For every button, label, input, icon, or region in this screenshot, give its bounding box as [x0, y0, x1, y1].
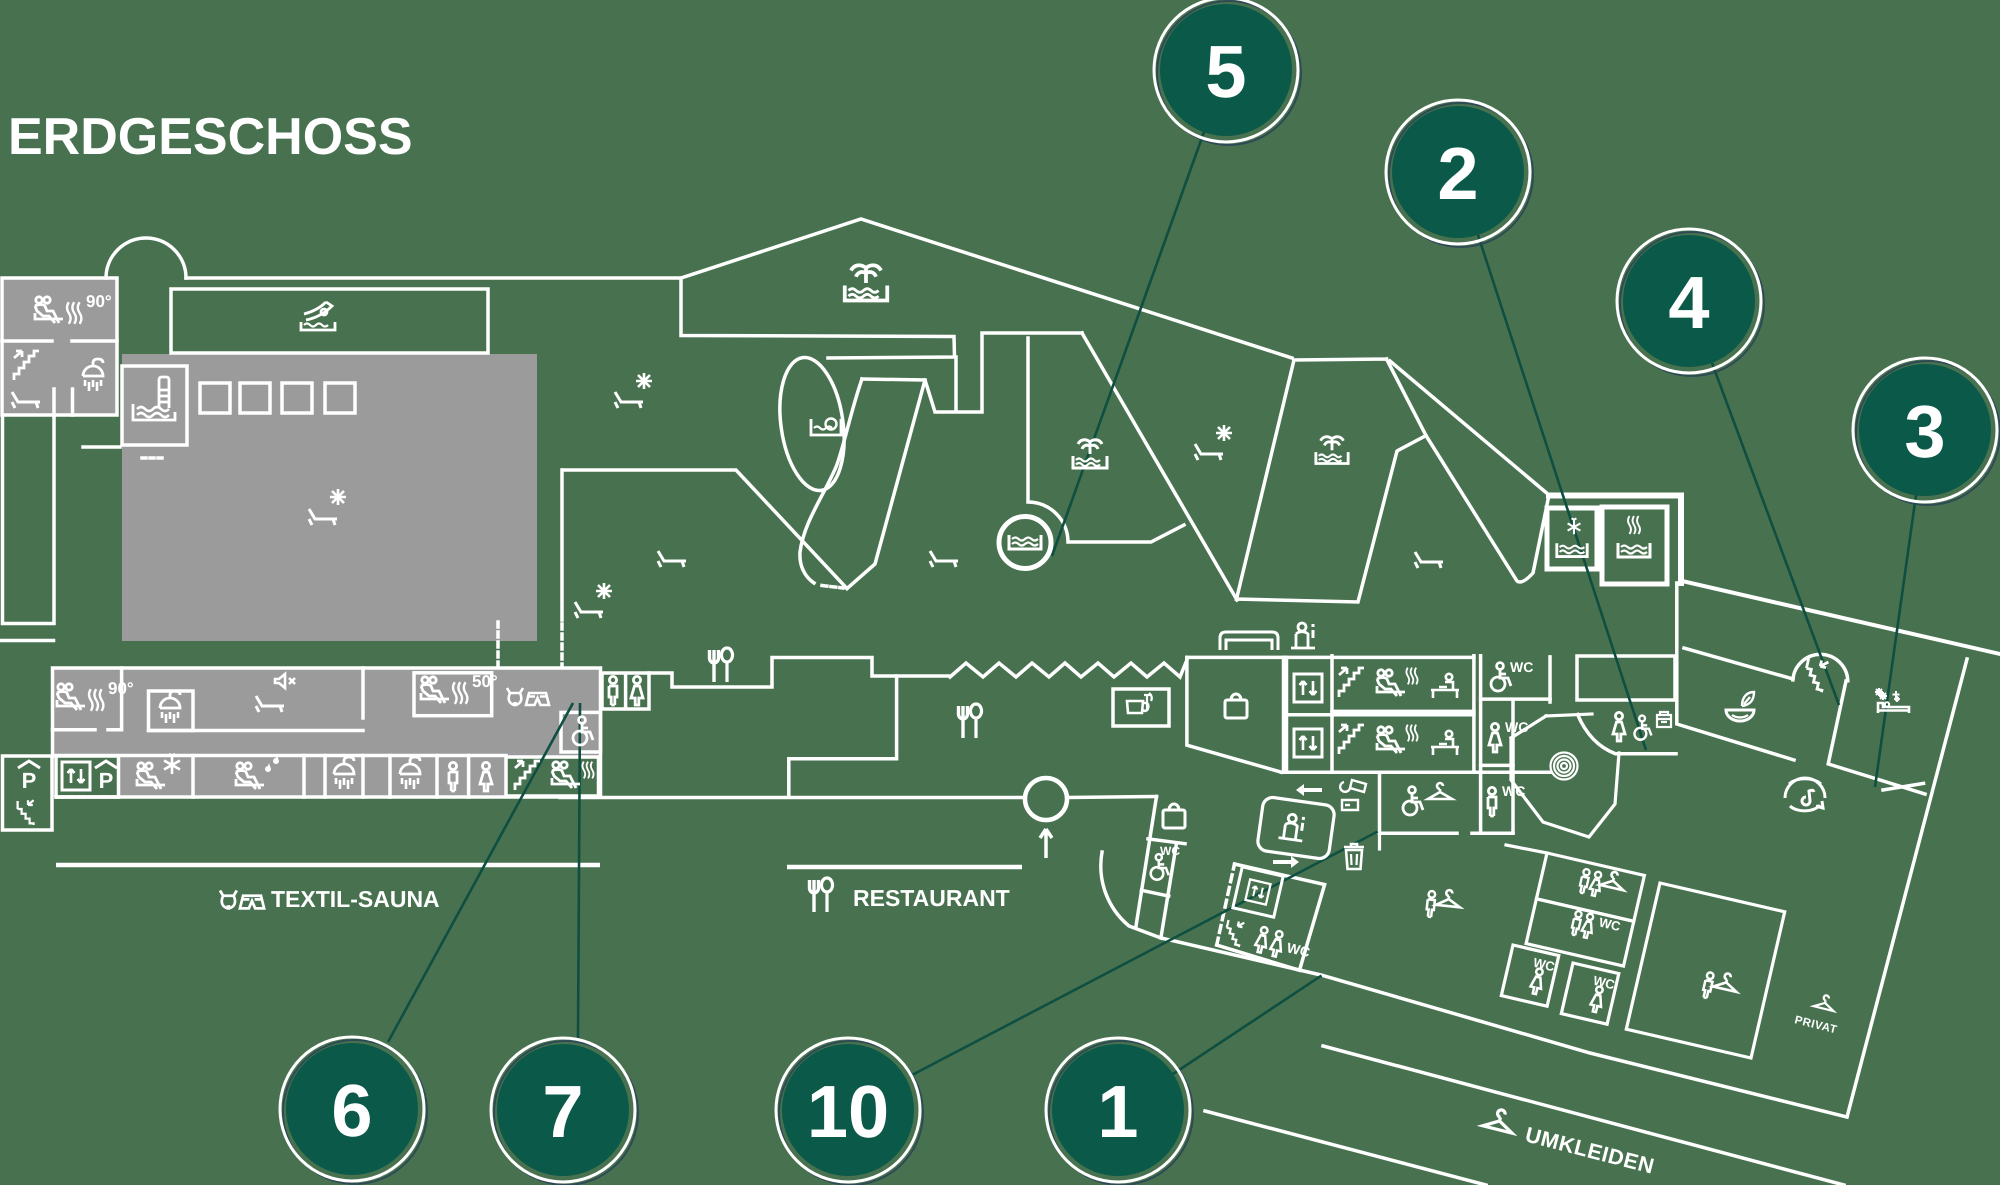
svg-text:WC: WC [1502, 783, 1525, 799]
svg-text:WC: WC [1510, 659, 1533, 675]
svg-text:1: 1 [1097, 1070, 1138, 1153]
svg-text:WC: WC [1160, 844, 1180, 858]
svg-text:10: 10 [807, 1070, 889, 1153]
svg-text:5: 5 [1205, 30, 1246, 113]
svg-text:3: 3 [1904, 390, 1945, 473]
svg-text:RESTAURANT: RESTAURANT [853, 885, 1010, 911]
svg-text:TEXTIL-SAUNA: TEXTIL-SAUNA [271, 886, 440, 912]
svg-text:ERDGESCHOSS: ERDGESCHOSS [8, 108, 413, 166]
svg-text:6: 6 [331, 1069, 372, 1152]
svg-text:90°: 90° [108, 679, 134, 698]
svg-text:50°: 50° [472, 672, 498, 691]
svg-text:4: 4 [1668, 261, 1709, 344]
svg-text:WC: WC [1505, 719, 1528, 735]
svg-text:90°: 90° [86, 292, 112, 311]
svg-text:7: 7 [542, 1070, 583, 1153]
svg-text:2: 2 [1437, 132, 1478, 215]
